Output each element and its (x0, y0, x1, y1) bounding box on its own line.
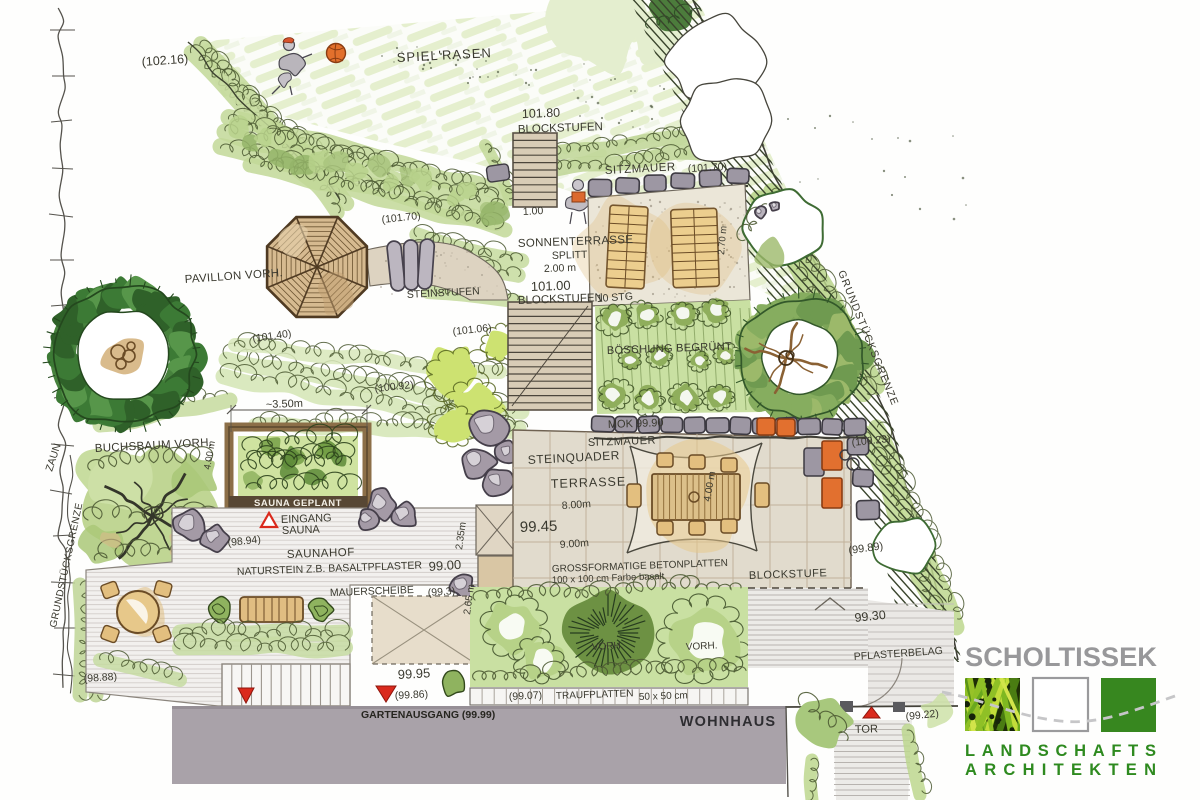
svg-text:LANDSCHAFTS: LANDSCHAFTS (965, 742, 1156, 760)
svg-text:50 x 50 cm: 50 x 50 cm (639, 690, 688, 703)
svg-text:SAUNA GEPLANT: SAUNA GEPLANT (254, 498, 342, 509)
svg-text:SPLITT: SPLITT (552, 249, 589, 262)
svg-text:(98.88): (98.88) (83, 671, 117, 685)
svg-text:(101.70): (101.70) (688, 161, 728, 175)
svg-text:VORH.: VORH. (686, 640, 718, 653)
svg-text:SITZMAUER: SITZMAUER (588, 435, 656, 449)
svg-text:MOK 99.90: MOK 99.90 (608, 417, 664, 431)
svg-text:TOR: TOR (855, 723, 878, 736)
svg-text:99.45: 99.45 (520, 518, 558, 536)
svg-text:TERRASSE: TERRASSE (551, 474, 627, 491)
svg-text:WOHNHAUS: WOHNHAUS (680, 714, 777, 730)
svg-text:1.00: 1.00 (523, 205, 544, 218)
svg-text:GARTENAUSGANG (99.99): GARTENAUSGANG (99.99) (361, 709, 495, 721)
svg-text:SAUNA: SAUNA (282, 524, 321, 537)
svg-text:99.00: 99.00 (428, 557, 462, 574)
svg-text:10 STG: 10 STG (596, 290, 633, 304)
svg-text:(99.86): (99.86) (395, 688, 429, 702)
svg-text:VORH.: VORH. (592, 640, 624, 653)
svg-text:101.80: 101.80 (522, 106, 561, 121)
svg-text:SCHOLTISSEK: SCHOLTISSEK (965, 642, 1158, 672)
svg-text:99.95: 99.95 (397, 665, 430, 682)
svg-text:(99.3): (99.3) (427, 585, 455, 599)
svg-text:101.00: 101.00 (531, 278, 571, 294)
svg-text:~3.50m: ~3.50m (266, 398, 303, 411)
svg-text:(99.07): (99.07) (509, 689, 543, 703)
svg-text:9.00m: 9.00m (559, 537, 589, 551)
svg-text:ARCHITEKTEN: ARCHITEKTEN (965, 761, 1156, 779)
svg-text:8.00m: 8.00m (561, 498, 591, 512)
svg-text:SAUNAHOF: SAUNAHOF (287, 547, 355, 561)
svg-text:2.00 m: 2.00 m (544, 262, 577, 275)
